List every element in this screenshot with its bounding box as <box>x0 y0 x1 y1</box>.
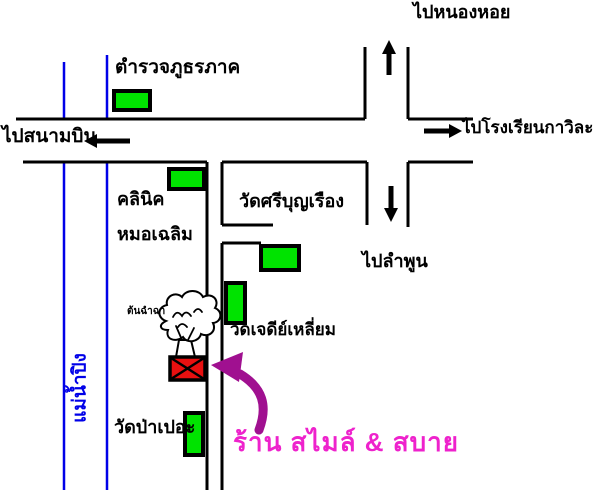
wat-chedi-liam-building <box>226 283 245 323</box>
label-to-airport: ไปสนามบิน <box>2 127 96 148</box>
arrow-right-to-kawila <box>424 124 462 138</box>
tree-canopy <box>159 291 220 341</box>
hand-drawn-map: ไปหนองหอย ตำรวจภูธรภาค ไปสนามบิน ไปโรงเร… <box>0 0 600 490</box>
label-ping-river: แม่น้ำปิง <box>71 323 92 453</box>
label-police-station: ตำรวจภูธรภาค <box>115 58 240 79</box>
label-shop-name: ร้าน สไมล์ & สบาย <box>233 428 459 457</box>
label-to-kawila-school: ไปโรงเรียนกาวิละ <box>462 119 593 138</box>
road-south-to-lamphun <box>367 162 408 227</box>
tree-icon <box>159 291 220 357</box>
wat-si-bunrueang-building <box>261 246 299 270</box>
label-to-lamphun: ไปลำพูน <box>362 252 428 272</box>
label-tree: ต้นฉำฉา <box>127 306 165 317</box>
arrow-up-to-nong-hoi <box>382 40 396 75</box>
arrow-down-to-lamphun <box>384 186 398 222</box>
clinic-building <box>169 169 204 189</box>
tree-trunk <box>176 340 195 357</box>
label-wat-pa-pao: วัดป่าเปอะ <box>114 418 195 438</box>
label-wat-si-bunrueang: วัดศรีบุญเรือง <box>239 192 344 212</box>
label-clinic-line2: หมอเฉลิม <box>117 225 193 245</box>
label-clinic-line1: คลินิค <box>117 190 164 210</box>
destination-marker <box>170 357 205 380</box>
label-wat-chedi-liam: วัดเจดีย์เหลี่ยม <box>230 321 336 340</box>
label-to-nong-hoi: ไปหนองหอย <box>413 3 510 23</box>
police-station-building <box>114 91 150 110</box>
highlight-arrow <box>211 352 263 430</box>
